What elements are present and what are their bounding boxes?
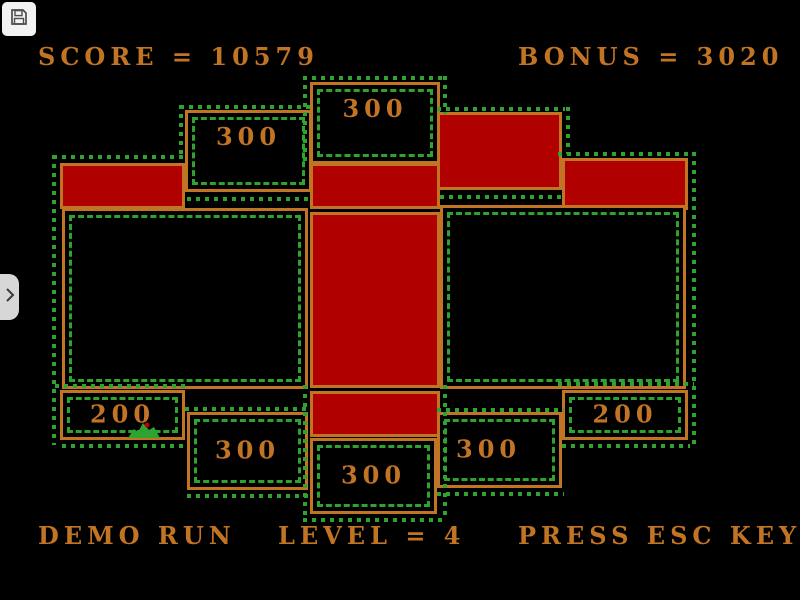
center-bottom-bonus-box: 300 bbox=[310, 438, 437, 514]
left-top-bonus-box-label: 300 bbox=[188, 125, 309, 149]
dotted-trail-segment bbox=[55, 384, 187, 388]
left-bottom-bonus-box: 300 bbox=[187, 412, 308, 490]
dotted-trail-segment bbox=[303, 385, 307, 518]
sidebar-expand-tab[interactable] bbox=[0, 274, 19, 320]
dotted-trail-segment bbox=[443, 385, 447, 518]
right-open-region bbox=[440, 205, 686, 389]
dotted-trail-segment bbox=[566, 107, 570, 154]
right-bottom-bonus-box: 300 bbox=[437, 412, 562, 488]
right-top-claimed-box bbox=[437, 112, 562, 190]
dotted-trail-segment bbox=[53, 155, 187, 159]
floppy-disk-icon bbox=[9, 7, 29, 31]
right-bottom-bonus-box-label: 300 bbox=[440, 438, 575, 462]
dotted-trail-segment bbox=[185, 407, 310, 411]
center-bottom-bonus-box-label: 300 bbox=[313, 464, 434, 488]
dotted-trail-segment bbox=[692, 152, 696, 444]
save-state-button[interactable] bbox=[2, 2, 36, 36]
dotted-trail-segment bbox=[437, 107, 565, 111]
dotted-trail-segment bbox=[303, 76, 447, 80]
game-screen: 300300200200300300300 SCORE = 10579 BONU… bbox=[0, 0, 800, 600]
left-open-region-dotted-outline bbox=[69, 215, 301, 382]
dotted-trail-segment bbox=[562, 444, 690, 448]
right-claimed-bar bbox=[562, 158, 688, 210]
right-200-bonus-box: 200 bbox=[562, 390, 688, 440]
right-200-bonus-box-label: 200 bbox=[565, 403, 685, 427]
left-top-bonus-box: 300 bbox=[185, 110, 312, 192]
dotted-trail-segment bbox=[437, 408, 564, 412]
left-200-bonus-box-label: 200 bbox=[63, 403, 182, 427]
dotted-trail-segment bbox=[443, 76, 447, 114]
center-claimed-band-top bbox=[310, 163, 440, 209]
left-200-bonus-box: 200 bbox=[60, 390, 185, 440]
dotted-trail-segment bbox=[179, 105, 183, 157]
dotted-trail-segment bbox=[62, 444, 187, 448]
center-claimed-column bbox=[310, 212, 440, 388]
chevron-right-icon bbox=[4, 287, 16, 307]
center-top-bonus-box-label: 300 bbox=[313, 97, 437, 121]
left-bottom-bonus-box-label: 300 bbox=[190, 439, 305, 463]
dotted-trail-segment bbox=[558, 382, 694, 386]
bonus-text: BONUS = 3020 bbox=[518, 45, 783, 69]
center-top-bonus-box: 300 bbox=[310, 82, 440, 164]
right-open-region-dotted-outline bbox=[447, 212, 679, 382]
score-text: SCORE = 10579 bbox=[38, 45, 319, 69]
center-claimed-band-bottom bbox=[310, 391, 440, 437]
dotted-trail-segment bbox=[187, 197, 308, 201]
green-creature-sprite bbox=[126, 419, 162, 443]
press-esc-text: PRESS ESC KEY bbox=[518, 524, 800, 548]
dotted-trail-segment bbox=[52, 155, 56, 445]
dotted-trail-segment bbox=[180, 105, 313, 109]
dotted-trail-segment bbox=[437, 492, 564, 496]
left-claimed-bar bbox=[60, 163, 185, 209]
dotted-trail-segment bbox=[303, 76, 307, 166]
level-text: LEVEL = 4 bbox=[278, 524, 465, 548]
demo-run-text: DEMO RUN bbox=[38, 524, 236, 548]
dotted-trail-segment bbox=[187, 494, 310, 498]
dotted-trail-segment bbox=[440, 195, 562, 199]
dotted-trail-segment bbox=[558, 152, 692, 156]
left-open-region bbox=[62, 208, 308, 389]
